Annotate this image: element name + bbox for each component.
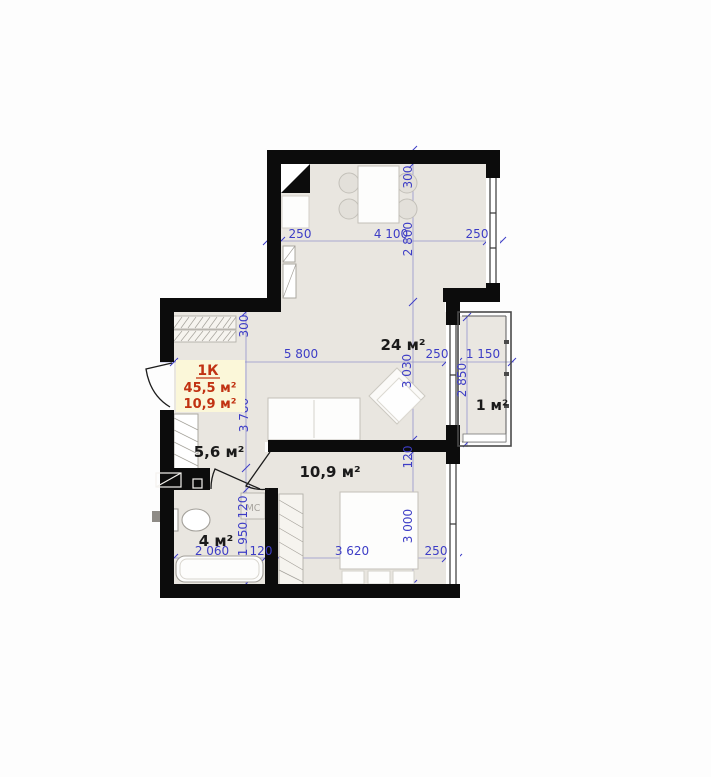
apartment-info-box: 1К 45,5 м² 10,9 м² (176, 360, 245, 412)
toilet-icon (182, 509, 210, 531)
wall-top (267, 150, 500, 164)
wall-hall-top (160, 298, 281, 312)
dim-bathroom-right-wall: 120 (250, 544, 273, 558)
bedroom-furniture (279, 492, 418, 586)
floor-plan-canvas: МС (0, 0, 711, 777)
chair-icon (397, 199, 417, 219)
total-area-label: 45,5 м² (184, 381, 237, 396)
chair-icon (339, 173, 359, 193)
dim-hall-top-wall: 300 (237, 315, 251, 338)
dim-bedroom-right-wall: 250 (425, 544, 448, 558)
dim-bedroom-top-wall: 120 (401, 446, 415, 469)
dim-bedroom-width: 3 620 (335, 544, 369, 558)
dining-table-icon (358, 166, 399, 223)
hallway-label: 5,6 м² (194, 443, 245, 461)
dim-kitchen-left-wall: 250 (289, 227, 312, 241)
dim-kitchen-depth: 2 800 (401, 222, 415, 256)
wall-left-lower (160, 410, 174, 598)
dim-bathroom-depth: 1 950 (236, 522, 250, 556)
entrance-door-icon (146, 363, 172, 407)
pipe-shaft-icon (152, 511, 160, 522)
bathroom-label: 4 м² (199, 532, 234, 550)
floor-plan: МС (0, 0, 711, 777)
dim-balcony-depth: 2 850 (455, 363, 469, 397)
pillow-icon (342, 571, 364, 584)
pillow-icon (368, 571, 390, 584)
kitchen-living-connector-floor (281, 288, 445, 314)
dim-living-width: 5 800 (284, 347, 318, 361)
balcony-sill (463, 434, 506, 442)
balcony-mullion (504, 340, 509, 344)
kitchen-living-label: 24 м² (381, 336, 426, 354)
balcony-label: 1 м² (476, 398, 508, 414)
dim-living-depth: 3 030 (400, 354, 414, 388)
wall-bathroom-right (265, 488, 278, 598)
dim-bedroom-depth: 3 000 (401, 509, 415, 543)
pillow-icon (393, 571, 414, 584)
wall-bottom (160, 584, 460, 598)
chair-icon (339, 199, 359, 219)
fridge-icon (282, 196, 309, 228)
bedroom-label: 10,9 м² (299, 463, 360, 481)
balcony-mullion (504, 372, 509, 376)
wall-kitchen-left (267, 150, 281, 312)
wall-left-upper (160, 298, 174, 362)
apartment-type-label: 1К (197, 363, 219, 379)
dim-balcony-width: 1 150 (466, 347, 500, 361)
wall-bedroom-right-stub (446, 452, 460, 464)
dim-living-right-wall: 250 (426, 347, 449, 361)
dim-bathroom-top-wall: 120 (236, 496, 250, 519)
dim-kitchen-right-wall: 250 (466, 227, 489, 241)
bathtub-icon (176, 556, 263, 582)
dim-kitchen-top-wall: 300 (401, 166, 415, 189)
wall-right-upper (486, 150, 500, 178)
wall-living-bedroom (268, 440, 460, 452)
living-area-label: 10,9 м² (184, 397, 237, 412)
